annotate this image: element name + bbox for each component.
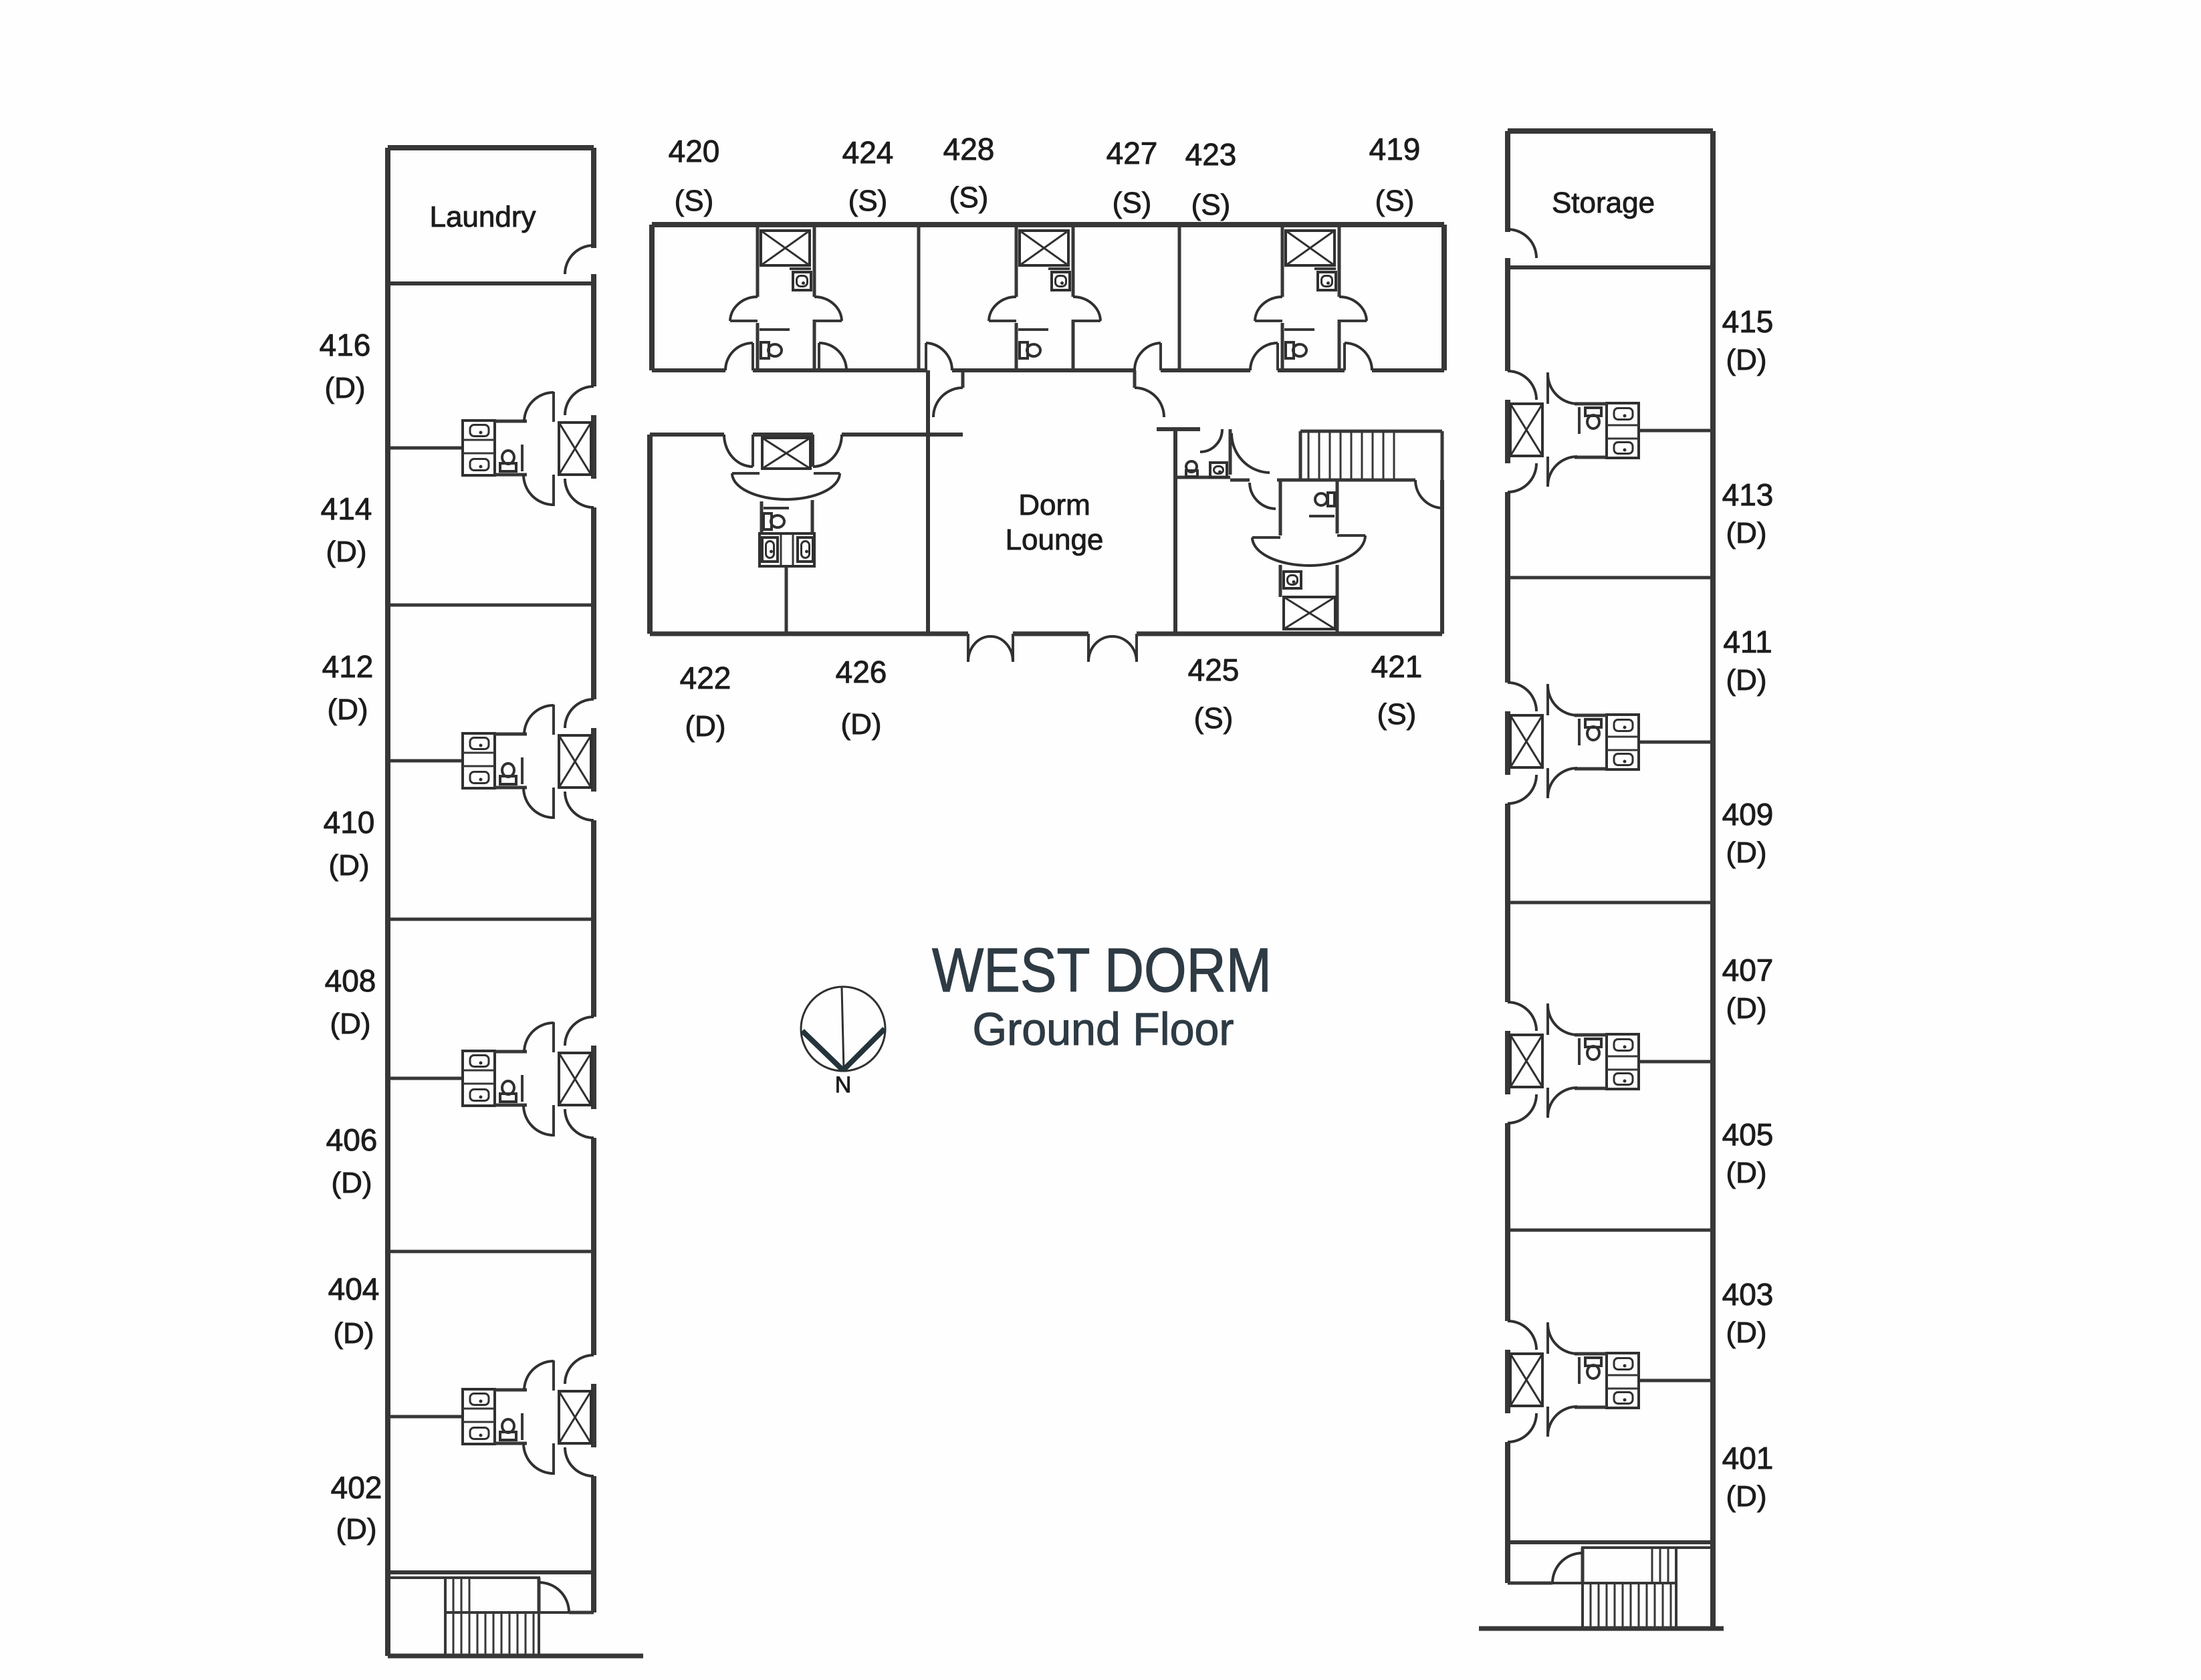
svg-text:413: 413 bbox=[1722, 477, 1774, 512]
svg-text:(D): (D) bbox=[840, 708, 881, 741]
svg-text:(D): (D) bbox=[1726, 344, 1766, 376]
svg-text:(D): (D) bbox=[1726, 517, 1766, 550]
svg-text:405: 405 bbox=[1722, 1117, 1774, 1152]
svg-text:(S): (S) bbox=[1191, 189, 1231, 221]
svg-text:427: 427 bbox=[1107, 136, 1158, 170]
svg-text:403: 403 bbox=[1722, 1277, 1774, 1312]
svg-text:Ground Floor: Ground Floor bbox=[973, 1003, 1234, 1055]
svg-text:407: 407 bbox=[1722, 953, 1774, 987]
svg-text:426: 426 bbox=[836, 654, 887, 689]
svg-text:406: 406 bbox=[326, 1122, 378, 1157]
svg-text:402: 402 bbox=[331, 1470, 382, 1505]
svg-text:(S): (S) bbox=[1113, 187, 1152, 219]
svg-text:411: 411 bbox=[1723, 624, 1772, 659]
svg-text:Laundry: Laundry bbox=[429, 201, 536, 233]
svg-text:(D): (D) bbox=[328, 849, 369, 882]
svg-text:(S): (S) bbox=[949, 181, 989, 214]
svg-text:Lounge: Lounge bbox=[1006, 523, 1104, 556]
svg-text:(D): (D) bbox=[1726, 664, 1766, 697]
svg-text:(S): (S) bbox=[675, 185, 714, 217]
svg-text:421: 421 bbox=[1371, 649, 1423, 684]
svg-text:410: 410 bbox=[324, 805, 375, 840]
svg-text:(S): (S) bbox=[1375, 185, 1415, 217]
svg-text:(D): (D) bbox=[1726, 1316, 1766, 1349]
svg-text:(D): (D) bbox=[1726, 836, 1766, 869]
svg-text:(D): (D) bbox=[331, 1167, 372, 1199]
svg-text:Storage: Storage bbox=[1552, 187, 1655, 219]
svg-text:(S): (S) bbox=[1194, 702, 1234, 735]
svg-text:(D): (D) bbox=[1726, 992, 1766, 1025]
svg-text:WEST DORM: WEST DORM bbox=[932, 935, 1272, 1005]
svg-text:(S): (S) bbox=[848, 185, 888, 217]
svg-text:(D): (D) bbox=[330, 1007, 370, 1040]
svg-text:(D): (D) bbox=[1726, 1480, 1766, 1513]
svg-text:423: 423 bbox=[1185, 137, 1237, 172]
svg-text:Dorm: Dorm bbox=[1018, 489, 1090, 521]
svg-text:428: 428 bbox=[943, 132, 995, 166]
svg-text:(D): (D) bbox=[685, 710, 725, 743]
svg-text:(D): (D) bbox=[327, 693, 368, 726]
svg-text:N: N bbox=[835, 1072, 852, 1098]
svg-text:420: 420 bbox=[669, 134, 720, 168]
svg-text:412: 412 bbox=[322, 649, 374, 684]
svg-text:414: 414 bbox=[321, 491, 372, 526]
svg-text:(S): (S) bbox=[1377, 698, 1417, 731]
svg-text:415: 415 bbox=[1722, 304, 1774, 339]
svg-text:401: 401 bbox=[1722, 1441, 1774, 1475]
svg-text:(D): (D) bbox=[336, 1513, 376, 1546]
svg-text:408: 408 bbox=[325, 963, 376, 998]
svg-text:424: 424 bbox=[842, 135, 894, 170]
svg-text:(D): (D) bbox=[326, 535, 366, 568]
svg-text:425: 425 bbox=[1188, 652, 1240, 687]
svg-text:409: 409 bbox=[1722, 797, 1774, 832]
svg-text:416: 416 bbox=[320, 328, 371, 362]
svg-text:422: 422 bbox=[680, 661, 731, 695]
svg-text:419: 419 bbox=[1369, 132, 1421, 166]
svg-text:(D): (D) bbox=[333, 1317, 374, 1350]
svg-text:(D): (D) bbox=[324, 372, 365, 404]
svg-text:404: 404 bbox=[328, 1272, 380, 1306]
svg-text:(D): (D) bbox=[1726, 1157, 1766, 1189]
